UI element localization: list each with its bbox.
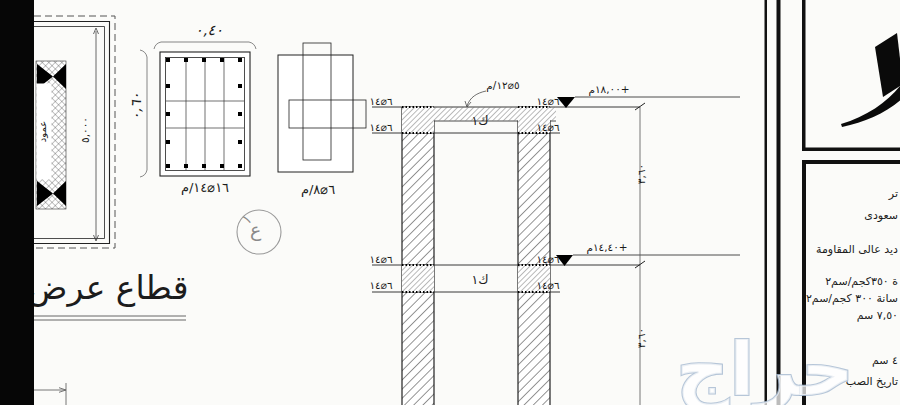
detail-a-rebar-label: ١٦⌀١٤/م: [152, 181, 258, 196]
haraj-watermark: حراج: [630, 326, 900, 405]
level-marker-lower: +١٤,٤٠م: [575, 241, 639, 253]
logo-brush-mark: [875, 33, 900, 97]
title-block-line: سعودى: [806, 210, 900, 223]
joint-rebar-label: ٦⌀١٤: [533, 95, 563, 107]
beam-label: ك١: [452, 114, 508, 128]
floor-height-dimension: ٣,٦٠: [635, 143, 647, 205]
title-block-line-cover-750: ٧,٥٠ سم: [806, 310, 900, 323]
title-block-line-concrete-300: سانة ٣٠٠ كجم/سم٢: [806, 293, 900, 306]
detail-b-rebar-label: ٦⌀٨/م: [274, 183, 362, 198]
detail-a-height-dimension: ٠,٦٠: [128, 73, 145, 139]
section-title: قطاع عرض: [26, 269, 190, 307]
section-bubble-letter: ع: [250, 219, 261, 241]
plan-column-rotated-label: عمود: [37, 84, 52, 180]
joint-rebar-label: ٦⌀١٤: [533, 121, 563, 133]
detail-a-width-dimension: ٠,٤٠: [176, 22, 242, 39]
joint-rebar-label: ٦⌀١٤: [533, 253, 563, 265]
scan-margin-bar: [0, 0, 34, 405]
beam-label: ك١: [452, 273, 508, 287]
title-block-line-concrete-350: ة ٣٥٠كجم/سم٢: [806, 276, 900, 289]
drawing-sheet: عمود ٥,٠٠٠ ٠,٤٠ ٠,٦٠ ١٦⌀١٤/م ٦⌀٨/م ١ ع ق…: [0, 0, 900, 405]
plan-span-dimension: ٥,٠٠٠: [79, 92, 91, 168]
title-block-line-steel: ديد عالى المقاومة: [806, 244, 900, 257]
joint-rebar-label: ٦⌀١٤: [533, 279, 563, 291]
joint-rebar-label: ٦⌀١٤: [366, 279, 396, 291]
slab-rebar-label: ٥⌀١٢/م: [474, 79, 532, 91]
level-marker-upper: +١٨,٠٠م: [577, 83, 641, 95]
joint-rebar-label: ٦⌀١٤: [366, 253, 396, 265]
joint-rebar-label: ٦⌀١٤: [366, 95, 396, 107]
joint-rebar-label: ٦⌀١٤: [366, 121, 396, 133]
logo-swoosh: [841, 86, 900, 127]
title-block-line: تر: [806, 188, 900, 201]
